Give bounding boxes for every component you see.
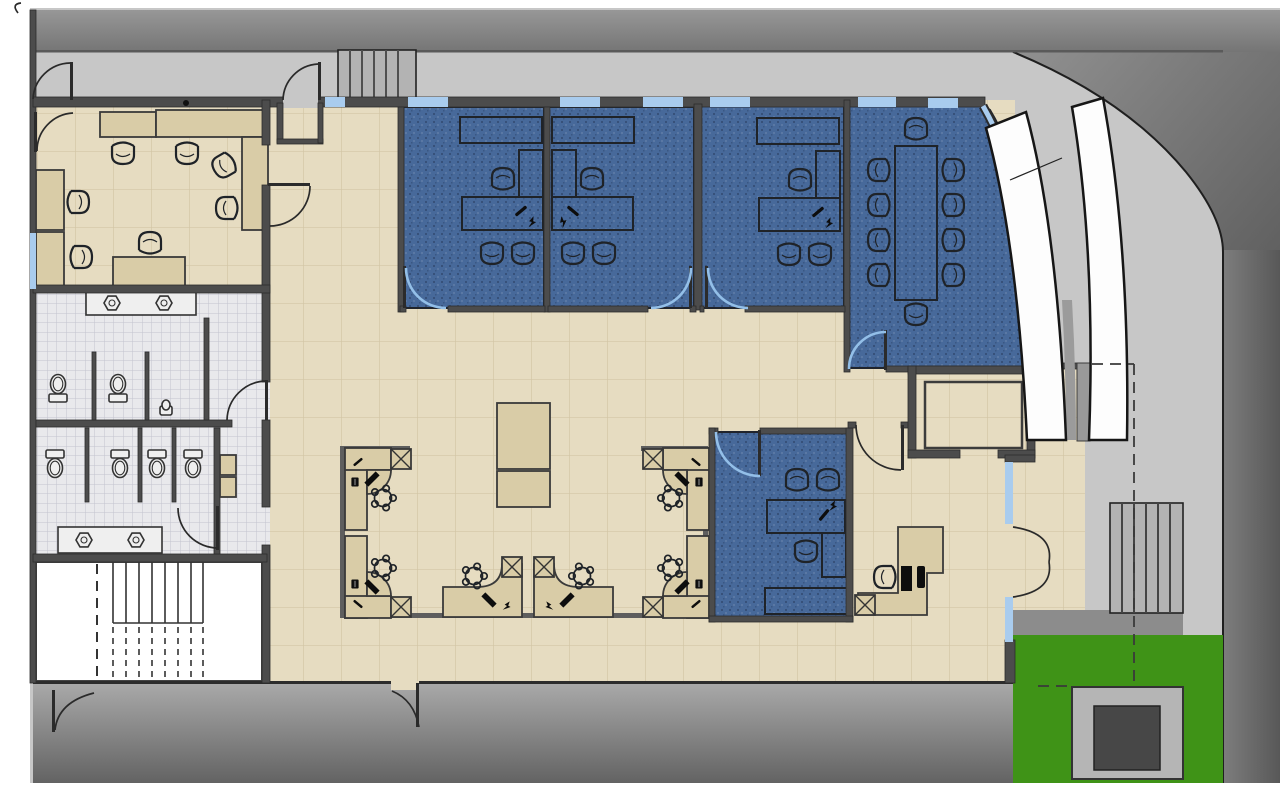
toilet-icon [109,375,127,403]
door-leaf [52,690,55,732]
vanity-counter [86,291,196,315]
urinal-icon [160,400,172,415]
corridor-cabinet [220,455,236,475]
floor-plan-svg [0,0,1280,800]
private-office-3 [700,104,844,308]
storefront-glass [1005,462,1013,524]
toilet-icon [148,450,166,478]
phone-icon [917,566,925,588]
sink-icon [156,296,172,310]
private-office-1 [402,107,544,308]
layout-table [497,471,550,507]
right-dark-strip [1223,250,1280,783]
monitor-icon [901,566,912,591]
toilet-icon [46,450,64,478]
vanity-counter [58,527,162,553]
storefront-glass [1005,597,1013,642]
vestibule-wall [908,366,1035,374]
toilet-icon [184,450,202,478]
table [113,257,185,288]
stairwell [36,562,262,681]
file-pedestal [855,595,875,615]
corridor-cabinet [220,477,236,497]
toilet-icon [111,450,129,478]
sink-icon [128,533,144,547]
counter [36,170,64,230]
sink-icon [76,533,92,547]
counter [36,232,64,290]
counter [156,110,268,137]
private-office-4 [713,432,850,618]
upper-walkway [33,10,1280,52]
planter-inner [1094,706,1160,770]
layout-table [497,403,550,469]
floor-plan-image [0,0,1280,800]
counter [100,112,156,137]
lower-walkway [33,681,1015,783]
sink-icon [104,296,120,310]
private-office-2 [548,107,694,308]
toilet-icon [49,375,67,403]
entry-steps-top [338,50,416,100]
